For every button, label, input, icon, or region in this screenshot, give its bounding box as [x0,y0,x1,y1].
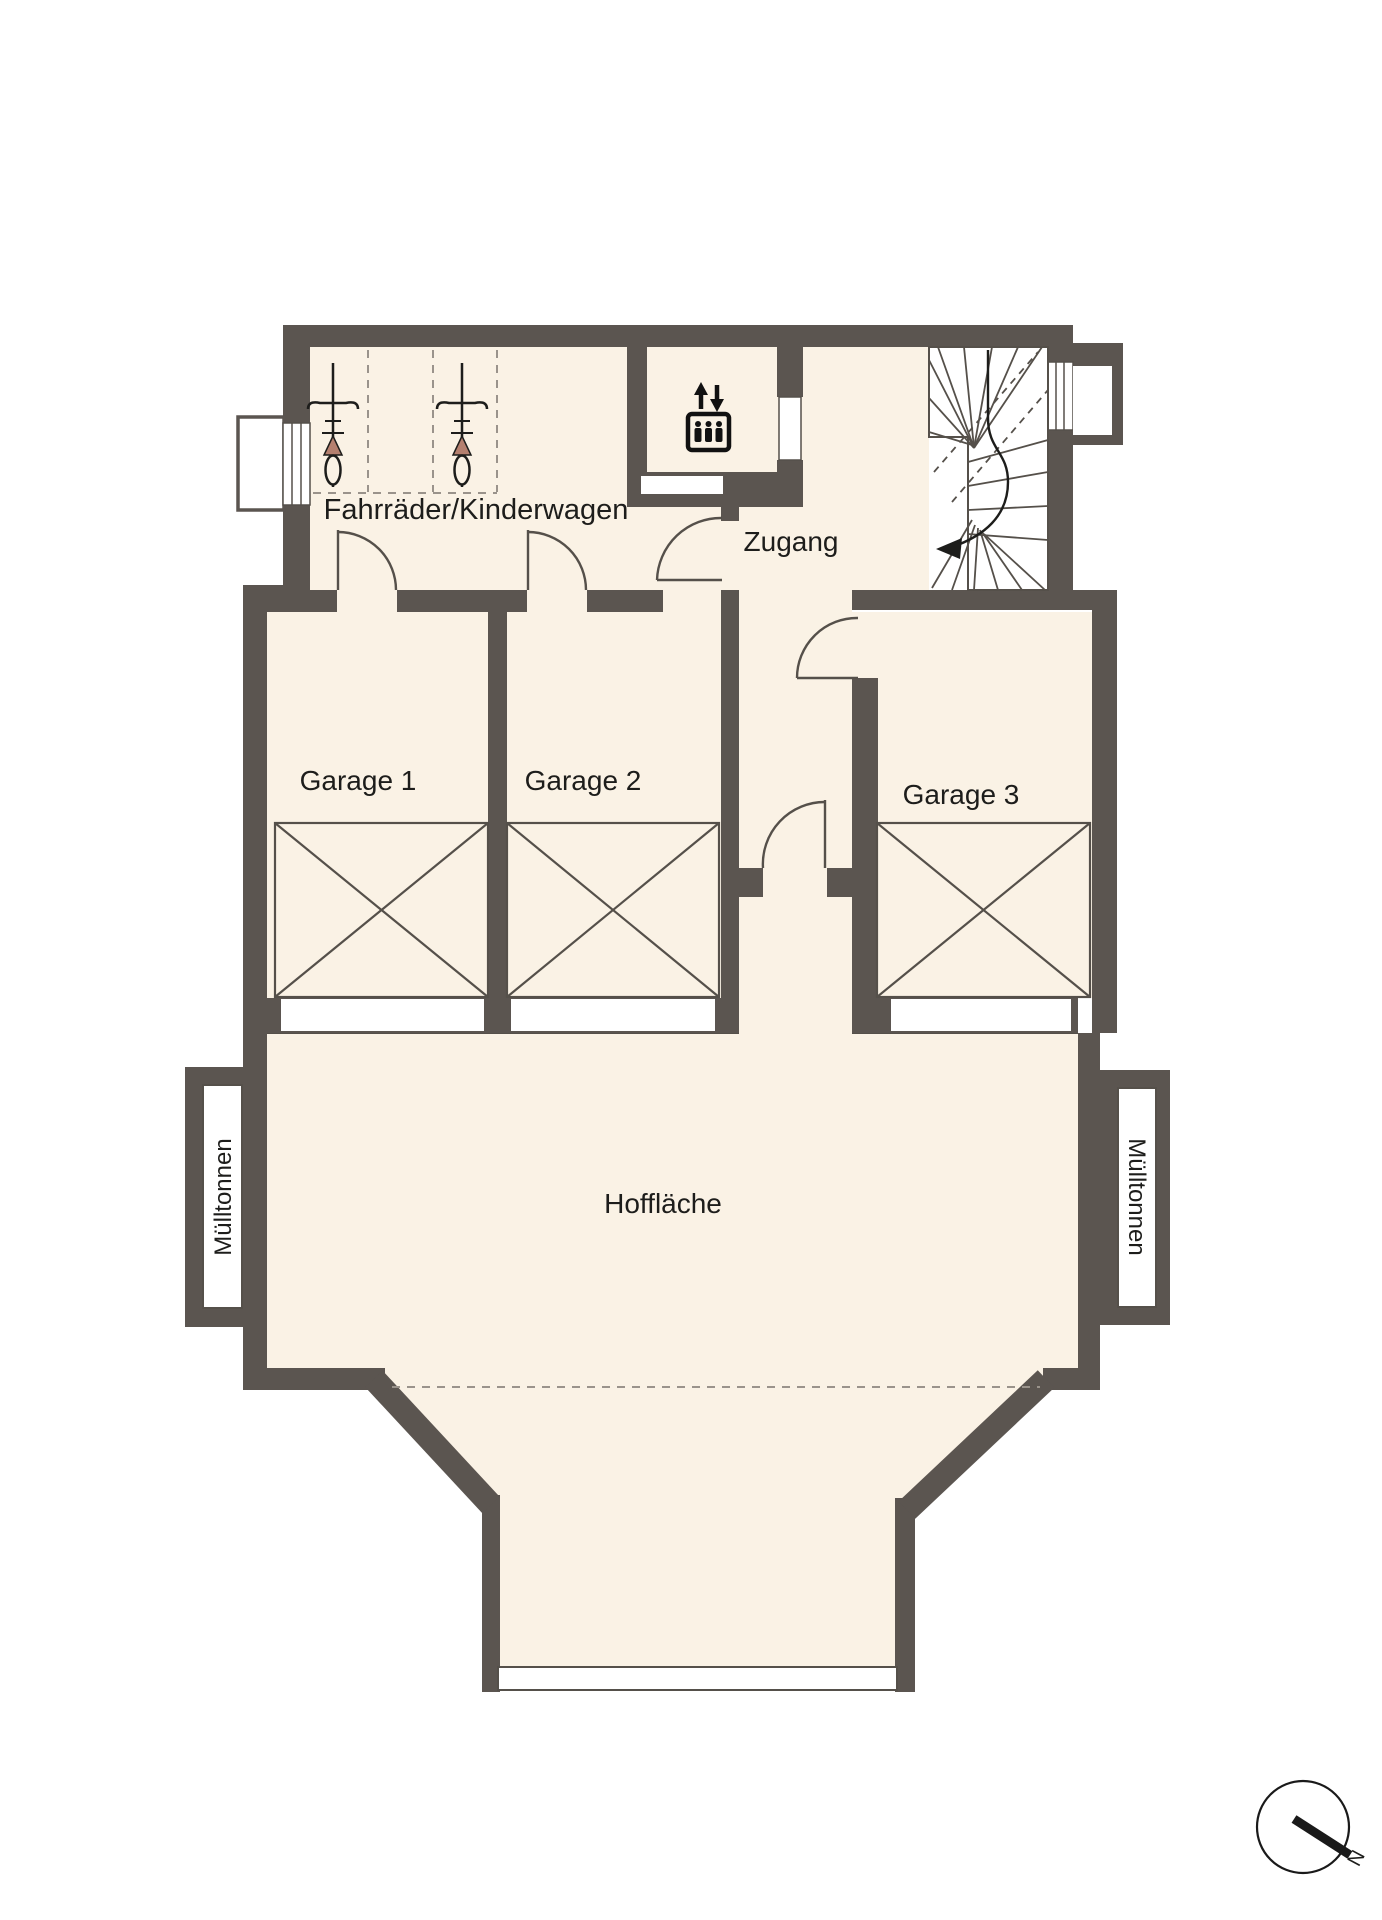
room-courtyard-floor [255,1033,1089,1685]
window-left [283,423,310,505]
wall-garage3-left [852,678,878,1033]
label-trash-right: Mülltonnen [1123,1138,1150,1255]
window-sill-left [238,417,284,510]
wall-garage3-right [1092,610,1117,1033]
north-compass-icon: N [1257,1781,1368,1873]
wall-stair-right [1048,430,1073,610]
label-trash-left: Mülltonnen [210,1138,237,1255]
elevator-people [695,421,723,442]
wall-garage3-top [852,590,1117,610]
label-bike-storage: Fahrräder/Kinderwagen [324,494,629,526]
wall-garage2-right [721,590,739,1033]
window-stair [1048,362,1073,430]
elevator-door-opening [779,397,801,460]
label-garage-1: Garage 1 [300,765,417,796]
entry-bump-interior [1073,366,1112,435]
wall-left [243,585,267,1390]
wall-courtyard-right [1078,1033,1100,1390]
label-courtyard: Hoffläche [604,1188,722,1219]
floor-plan-page: N Fahrräder/Kinderwagen Zugang Garage 1 … [0,0,1382,1920]
stair-direction-arrow [936,538,962,559]
label-access: Zugang [744,526,839,557]
courtyard-gate-opening [498,1667,897,1690]
label-garage-2: Garage 2 [525,765,642,796]
garage1-door-opening [281,999,484,1031]
garage3-door-opening [891,999,1071,1031]
garage2-door-opening [511,999,715,1031]
wall-garage-divider [488,612,507,1033]
floor-plan-drawing: N Fahrräder/Kinderwagen Zugang Garage 1 … [0,0,1382,1920]
label-garage-3: Garage 3 [903,779,1020,810]
wall-stub-door [721,495,739,521]
staircase-symbol [929,347,1048,590]
wall-top [283,325,1073,347]
